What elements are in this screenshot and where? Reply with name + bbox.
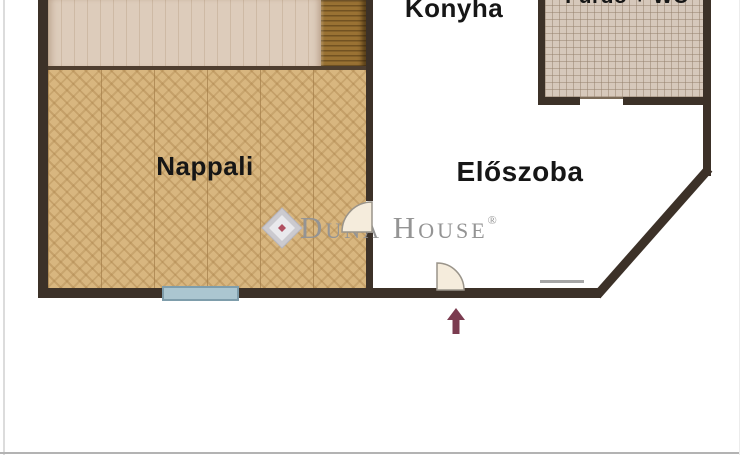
living-room-door-swing [342,202,372,232]
plan-symbols-overlay [0,0,740,455]
room-label-konyha: Konyha [374,0,534,24]
room-label-eloszoba: Előszoba [440,156,600,188]
room-label-nappali: Nappali [140,151,270,182]
floor-plan: Duna House® Nappali Előszoba Konyha Fürd… [0,0,740,455]
window-symbol [163,287,238,300]
entrance-door-swing [437,263,464,290]
entrance-arrow-icon [447,308,465,334]
hall-opening-threshold [540,280,584,283]
wall-diagonal [600,172,706,292]
